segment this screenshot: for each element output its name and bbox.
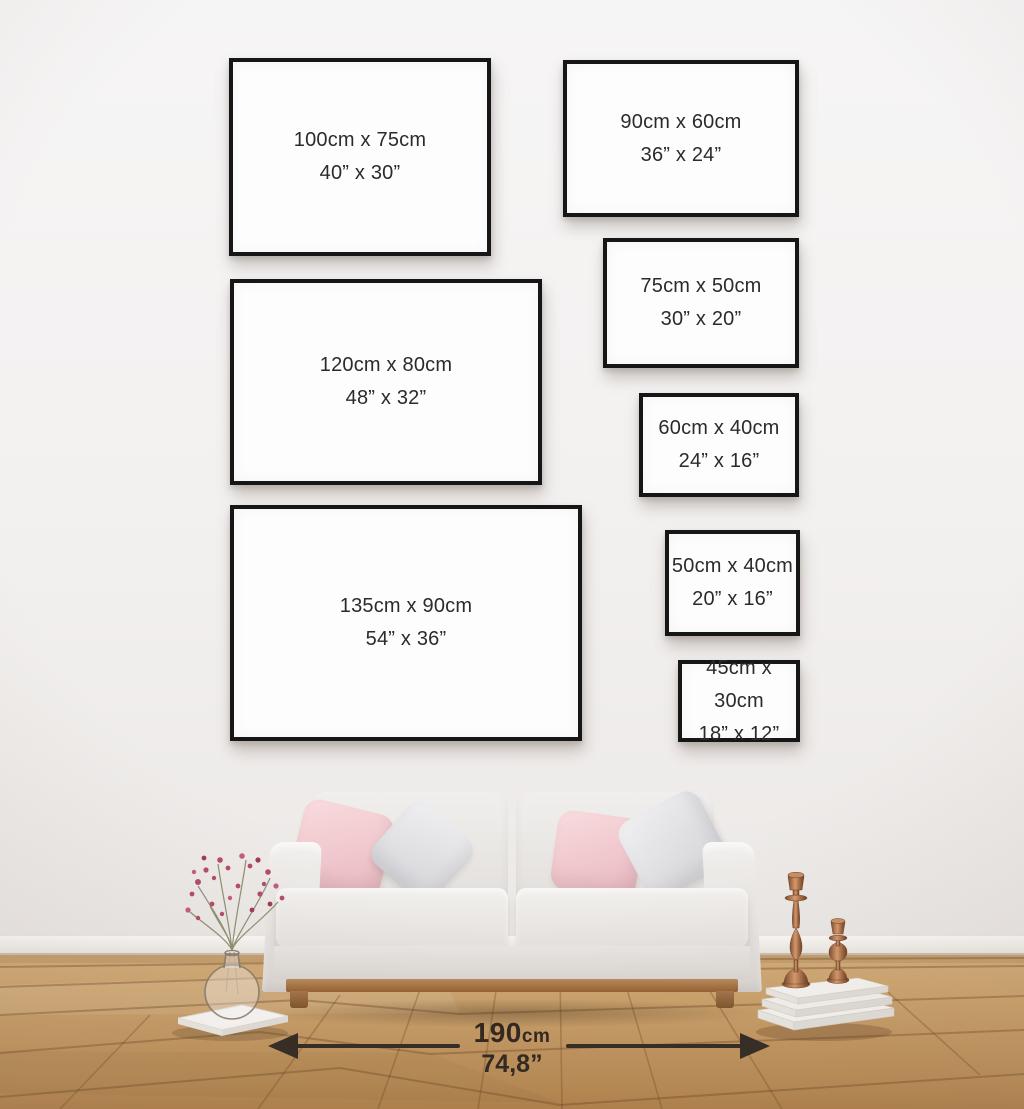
frame-size-inches-label: 54” x 36” bbox=[366, 623, 447, 656]
size-frame-90x60: 90cm x 60cm 36” x 24” bbox=[563, 60, 799, 217]
dimension-cm-value: 190 bbox=[474, 1017, 522, 1048]
frame-size-cm-label: 50cm x 40cm bbox=[672, 550, 793, 583]
dimension-line-left bbox=[294, 1044, 460, 1048]
sofa-wood-rail bbox=[286, 979, 738, 992]
size-frame-120x80: 120cm x 80cm 48” x 32” bbox=[230, 279, 542, 485]
frame-size-inches-label: 30” x 20” bbox=[661, 303, 742, 336]
sofa bbox=[266, 786, 758, 1026]
frame-size-inches-label: 48” x 32” bbox=[346, 382, 427, 415]
frame-size-cm-label: 100cm x 75cm bbox=[294, 124, 426, 157]
sofa-seat-cushion-left bbox=[276, 888, 508, 950]
size-frame-60x40: 60cm x 40cm 24” x 16” bbox=[639, 393, 799, 497]
frame-size-inches-label: 40” x 30” bbox=[320, 157, 401, 190]
frame-size-inches-label: 24” x 16” bbox=[679, 445, 760, 478]
dimension-cm-label: 190cm bbox=[452, 1017, 572, 1049]
size-frame-75x50: 75cm x 50cm 30” x 20” bbox=[603, 238, 799, 368]
frame-size-cm-label: 135cm x 90cm bbox=[340, 590, 472, 623]
size-frame-135x90: 135cm x 90cm 54” x 36” bbox=[230, 505, 582, 741]
candlesticks-on-books bbox=[752, 856, 902, 1046]
frame-size-cm-label: 75cm x 50cm bbox=[640, 270, 761, 303]
dimension-cm-unit: cm bbox=[522, 1026, 550, 1047]
frame-size-inches-label: 36” x 24” bbox=[641, 139, 722, 172]
frame-size-cm-label: 120cm x 80cm bbox=[320, 349, 452, 382]
dimension-line-right bbox=[566, 1044, 746, 1048]
frame-size-cm-label: 60cm x 40cm bbox=[658, 412, 779, 445]
candlestick-short bbox=[827, 919, 849, 984]
dimension-inches-label: 74,8” bbox=[452, 1050, 572, 1079]
sofa-leg-right bbox=[716, 991, 734, 1008]
size-frame-50x40: 50cm x 40cm 20” x 16” bbox=[665, 530, 800, 636]
candlestick-tall bbox=[782, 872, 810, 988]
arrowhead-right-icon bbox=[740, 1033, 770, 1059]
book-stack bbox=[758, 978, 894, 1030]
flower-vase bbox=[168, 842, 298, 1044]
frame-size-inches-label: 20” x 16” bbox=[692, 583, 773, 616]
room-scene: 100cm x 75cm 40” x 30” 90cm x 60cm 36” x… bbox=[0, 0, 1024, 1109]
sofa-seat-cushion-right bbox=[516, 888, 748, 950]
frame-size-cm-label: 90cm x 60cm bbox=[620, 106, 741, 139]
size-frame-45x30: 45cm x 30cm 18” x 12” bbox=[678, 660, 800, 742]
frame-size-inches-label: 18” x 12” bbox=[699, 718, 780, 751]
sofa-base bbox=[274, 946, 750, 980]
frame-size-cm-label: 45cm x 30cm bbox=[682, 652, 796, 718]
size-frame-100x75: 100cm x 75cm 40” x 30” bbox=[229, 58, 491, 256]
